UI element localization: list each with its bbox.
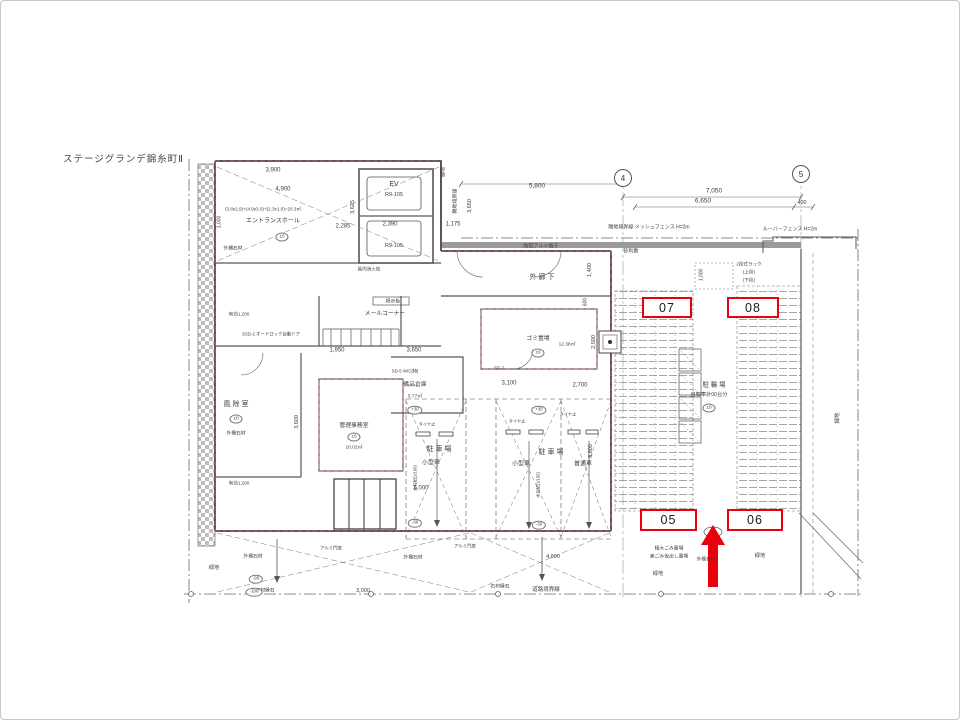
floor-plan-drawing	[1, 1, 959, 719]
plan-label: メールコーナー	[365, 311, 405, 317]
plan-label: SD-7	[494, 367, 504, 372]
plan-label: 6,650	[695, 197, 711, 204]
plan-label: 有効1,200	[229, 480, 250, 485]
plan-label: タイヤ止	[560, 413, 577, 418]
plan-label: R9-105	[385, 192, 403, 198]
plan-label: 道路境界線	[532, 587, 560, 593]
plan-label: 兼ごみ仮出し置場	[650, 554, 688, 559]
plan-label: 3,600	[294, 415, 300, 429]
plan-label: 外構石材	[403, 555, 422, 560]
level-mark: -30	[408, 519, 422, 528]
plan-label: SD-5 WIC[特]	[392, 370, 419, 375]
plan-label: EV	[389, 181, 398, 189]
grid-bubble-5: 5	[792, 165, 810, 183]
plan-label: 3,650	[467, 199, 473, 213]
level-mark: +30	[407, 406, 422, 415]
plan-label: 1,950	[329, 348, 344, 355]
plan-label: 備品倉庫	[403, 382, 426, 388]
plan-label: 水勾配(1/100)	[414, 465, 419, 491]
plan-label: エントランスホール	[246, 219, 300, 226]
space-marker-08[interactable]: 08	[727, 297, 779, 318]
plan-label: 3,100	[501, 381, 516, 388]
plan-label: 2,390	[382, 222, 397, 229]
plan-label: 2,700	[572, 383, 587, 390]
plan-label: (上段)	[743, 269, 755, 274]
level-mark: +30	[531, 406, 546, 415]
plan-label: 普通車	[574, 462, 592, 469]
level-mark: ±0	[531, 349, 544, 358]
level-mark: ±0	[275, 233, 288, 242]
plan-label: 管理事務室	[340, 423, 369, 429]
space-marker-06[interactable]: 06	[727, 509, 783, 531]
plan-label: ゴミ置場	[526, 336, 549, 342]
plan-label: 緑地	[755, 554, 765, 560]
space-marker-07[interactable]: 07	[642, 297, 692, 318]
plan-label: 風 除 室	[224, 401, 249, 409]
plan-label: 4,800	[546, 554, 560, 560]
plan-label: 3,650	[406, 348, 421, 355]
level-mark: ±0	[229, 415, 242, 424]
plan-label: 5,800	[529, 182, 545, 189]
plan-label: R9-105	[385, 243, 403, 249]
plan-label: 有効1,200	[229, 311, 250, 316]
level-mark: ±0	[702, 404, 715, 413]
plan-label: 5,800	[588, 444, 594, 458]
level-mark: ±0	[347, 433, 360, 442]
plan-label: 外構石材	[243, 554, 262, 559]
plan-label: 2,500	[591, 335, 597, 349]
plan-label: 小型車	[512, 462, 530, 469]
plan-label: 水勾配(1/100)	[537, 472, 542, 498]
plan-label: 隣地境界線	[453, 188, 459, 213]
plan-label: (下段)	[743, 277, 755, 282]
plan-label: アルミ門扉	[320, 547, 342, 552]
plan-label: タイヤ止	[509, 420, 526, 425]
plan-label: 1,175	[445, 222, 460, 229]
plan-label: 駐 車 場	[427, 446, 452, 454]
plan-label: ルーバーフェンス H=2m	[763, 227, 817, 233]
level-mark: -100	[246, 588, 263, 597]
plan-label: 1,000	[699, 269, 705, 282]
plan-label: 自転車計00台分	[691, 393, 728, 399]
grid-bubble-4: 4	[614, 169, 632, 187]
plan-label: 2段式ラック	[736, 261, 762, 266]
plan-label: 外構石材	[697, 556, 715, 561]
plan-label: 2,285	[335, 224, 350, 231]
plan-label: 石材縁石	[490, 584, 509, 589]
plan-label: 小型車	[422, 461, 440, 468]
plan-label: タイヤ止	[419, 423, 436, 428]
plan-label: 防犯アルミ格子	[524, 244, 559, 250]
plan-label: 3,625	[350, 200, 356, 214]
plan-label: 掲示板	[386, 299, 400, 304]
plan-label: 緑地	[653, 572, 663, 578]
plan-label: SSD-2 オートロック自動ドア	[242, 333, 300, 338]
plan-label: 外構石材	[223, 246, 242, 251]
plan-label: 粗大ごみ置場	[655, 546, 684, 551]
plan-label: 4,900	[275, 187, 290, 194]
plan-label: 隣地境界線 メッシュフェンス H=2m	[608, 225, 689, 231]
level-mark: -90	[249, 575, 263, 584]
plan-label: 1,000	[217, 216, 223, 229]
plan-label: 駐 車 場	[539, 449, 564, 457]
plan-label: 1,400	[587, 263, 593, 277]
plan-label: 400	[797, 200, 806, 206]
plan-label: 緑地	[209, 566, 219, 572]
plan-label: 駐 輪 場	[702, 381, 725, 388]
plan-label: 外構石材	[226, 431, 245, 436]
plan-label: 12.38㎡	[559, 342, 576, 347]
level-mark: -30	[532, 521, 546, 530]
space-marker-05[interactable]: 05	[640, 509, 697, 531]
plan-label: 屋内消火栓	[358, 266, 381, 271]
plan-label: (3.8x2.9)+(4.9x3.0)+(2.3x1.0)=20.3㎡	[225, 206, 301, 211]
plan-label: 3,000	[356, 588, 370, 594]
plan-label: 7,050	[706, 187, 722, 194]
plan-label: 3,900	[265, 168, 280, 175]
plan-label: アルミ門扉	[454, 545, 476, 550]
plan-label: 10.02㎡	[346, 445, 363, 450]
plan-label: 緑地	[835, 412, 841, 423]
plan-label: 砂利敷	[623, 249, 638, 255]
plan-label: 5.77㎡	[408, 394, 422, 399]
floor-plan-slide: ステージグランデ錦糸町Ⅱ	[0, 0, 960, 720]
plan-label: 600	[583, 298, 589, 306]
plan-label: 緑地	[441, 167, 447, 177]
plan-label: 外 廊 下	[530, 274, 555, 282]
